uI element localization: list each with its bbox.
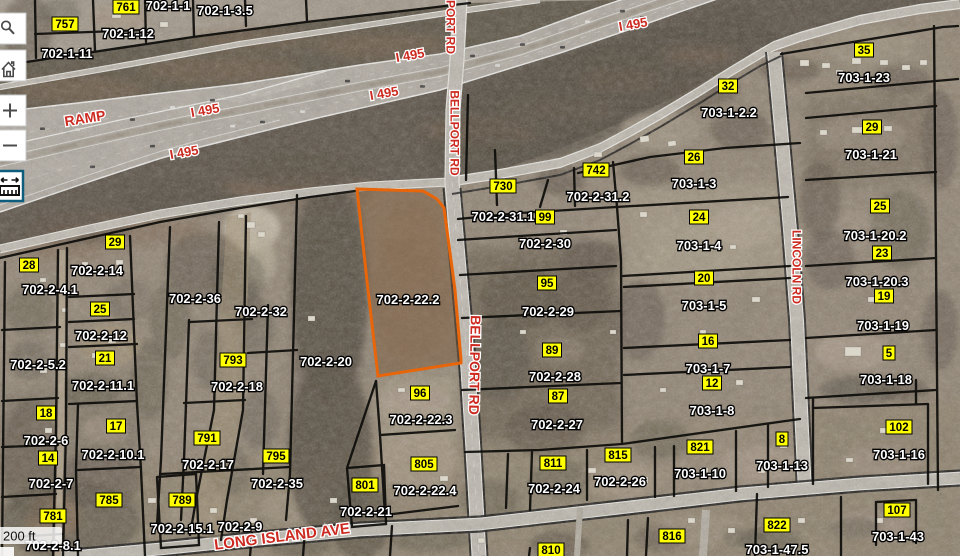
- svg-text:702-2-12: 702-2-12: [75, 328, 127, 343]
- svg-text:805: 805: [414, 459, 434, 471]
- svg-text:99: 99: [539, 212, 552, 224]
- svg-text:702-1-12: 702-1-12: [102, 26, 154, 41]
- svg-text:703-1-21: 703-1-21: [845, 147, 897, 162]
- svg-text:815: 815: [608, 450, 628, 462]
- svg-text:16: 16: [702, 336, 715, 348]
- svg-text:703-1-10: 703-1-10: [674, 466, 726, 481]
- svg-text:810: 810: [541, 545, 560, 556]
- svg-text:702-2-6: 702-2-6: [24, 433, 69, 448]
- svg-text:17: 17: [110, 421, 123, 433]
- svg-text:781: 781: [43, 511, 63, 523]
- svg-text:702-2-11.1: 702-2-11.1: [72, 378, 134, 393]
- svg-text:702-2-4.1: 702-2-4.1: [22, 282, 78, 297]
- svg-text:702-2-21: 702-2-21: [340, 504, 392, 519]
- svg-text:757: 757: [55, 19, 74, 31]
- svg-text:702-1-1: 702-1-1: [146, 0, 191, 13]
- svg-text:20: 20: [698, 273, 711, 285]
- svg-text:107: 107: [887, 505, 906, 517]
- svg-text:96: 96: [414, 388, 427, 400]
- svg-text:21: 21: [99, 353, 112, 365]
- svg-text:89: 89: [546, 345, 559, 357]
- svg-text:35: 35: [858, 45, 871, 57]
- svg-text:23: 23: [876, 248, 889, 260]
- svg-text:702-2-15.1: 702-2-15.1: [151, 521, 214, 536]
- svg-text:26: 26: [688, 152, 701, 164]
- svg-text:12: 12: [706, 378, 719, 390]
- svg-text:702-2-29: 702-2-29: [522, 304, 574, 319]
- svg-text:703-1-16: 703-1-16: [873, 447, 925, 462]
- svg-text:702-2-7: 702-2-7: [29, 476, 74, 491]
- svg-text:BELLPORT RD: BELLPORT RD: [448, 90, 462, 176]
- svg-text:702-2-28: 702-2-28: [529, 369, 581, 384]
- svg-text:702-2-22.4: 702-2-22.4: [394, 483, 458, 498]
- svg-text:28: 28: [23, 260, 36, 272]
- svg-text:702-2-31.1: 702-2-31.1: [472, 209, 535, 224]
- svg-text:702-2-5.2: 702-2-5.2: [10, 357, 66, 372]
- svg-text:702-2-18: 702-2-18: [211, 379, 263, 394]
- svg-text:761: 761: [116, 2, 136, 14]
- svg-text:702-1-11: 702-1-11: [41, 46, 92, 61]
- svg-text:702-2-24: 702-2-24: [528, 481, 581, 496]
- svg-text:8: 8: [779, 434, 786, 446]
- svg-text:702-2-32: 702-2-32: [235, 304, 287, 319]
- svg-text:703-1-18: 703-1-18: [860, 372, 912, 387]
- svg-text:25: 25: [94, 304, 107, 316]
- svg-text:702-2-35: 702-2-35: [251, 476, 303, 491]
- svg-text:795: 795: [266, 451, 286, 463]
- svg-text:702-2-26: 702-2-26: [594, 474, 646, 489]
- svg-text:703-1-43: 703-1-43: [872, 529, 924, 544]
- svg-text:703-1-4: 703-1-4: [677, 238, 723, 253]
- svg-text:703-1-19: 703-1-19: [857, 318, 909, 333]
- svg-text:5: 5: [886, 348, 893, 360]
- svg-text:703-1-2.2: 703-1-2.2: [701, 105, 757, 120]
- svg-text:BELLPORT RD: BELLPORT RD: [466, 315, 484, 415]
- svg-text:703-1-13: 703-1-13: [756, 458, 808, 473]
- svg-text:102: 102: [889, 422, 908, 434]
- svg-text:200 ft: 200 ft: [3, 529, 36, 544]
- svg-text:95: 95: [541, 278, 554, 290]
- svg-text:789: 789: [172, 495, 191, 507]
- svg-text:702-2-30: 702-2-30: [519, 236, 571, 251]
- svg-text:821: 821: [690, 442, 710, 454]
- svg-text:702-2-20: 702-2-20: [300, 354, 352, 369]
- svg-text:32: 32: [722, 81, 735, 93]
- svg-text:703-1-3: 703-1-3: [672, 176, 717, 191]
- svg-text:25: 25: [874, 201, 887, 213]
- svg-text:702-2-36: 702-2-36: [169, 291, 221, 306]
- svg-text:703-1-5: 703-1-5: [682, 298, 727, 313]
- svg-text:811: 811: [544, 458, 563, 470]
- svg-text:702-1-3.5: 702-1-3.5: [197, 3, 253, 18]
- svg-text:793: 793: [223, 355, 242, 367]
- svg-text:LINCOLN RD: LINCOLN RD: [790, 230, 804, 304]
- svg-text:816: 816: [662, 531, 681, 543]
- svg-text:742: 742: [586, 165, 605, 177]
- svg-text:703-1-20.3: 703-1-20.3: [846, 274, 909, 289]
- svg-text:18: 18: [40, 408, 53, 420]
- svg-text:19: 19: [878, 291, 891, 303]
- svg-text:702-2-27: 702-2-27: [531, 417, 583, 432]
- svg-text:703-1-23: 703-1-23: [838, 70, 890, 85]
- svg-text:702-2-22.2: 702-2-22.2: [377, 292, 440, 307]
- svg-text:29: 29: [109, 237, 122, 249]
- svg-text:730: 730: [493, 181, 512, 193]
- svg-text:702-2-22.3: 702-2-22.3: [390, 412, 453, 427]
- svg-text:801: 801: [355, 480, 375, 492]
- svg-text:24: 24: [693, 212, 706, 224]
- svg-text:PORT RD: PORT RD: [444, 0, 458, 54]
- svg-text:703-1-20.2: 703-1-20.2: [844, 228, 907, 243]
- svg-text:87: 87: [552, 391, 565, 403]
- svg-text:29: 29: [866, 122, 879, 134]
- svg-text:702-2-17: 702-2-17: [182, 457, 234, 472]
- svg-text:702-2-31.2: 702-2-31.2: [567, 189, 630, 204]
- svg-text:702-2-10.1: 702-2-10.1: [82, 447, 145, 462]
- svg-text:702-2-14: 702-2-14: [71, 263, 124, 278]
- svg-text:703-1-8: 703-1-8: [690, 403, 735, 418]
- svg-text:791: 791: [197, 433, 217, 445]
- svg-text:822: 822: [767, 520, 786, 532]
- svg-text:785: 785: [99, 495, 119, 507]
- svg-text:703-1-47.5: 703-1-47.5: [746, 542, 809, 556]
- svg-text:14: 14: [42, 453, 55, 465]
- svg-text:703-1-7: 703-1-7: [686, 361, 731, 376]
